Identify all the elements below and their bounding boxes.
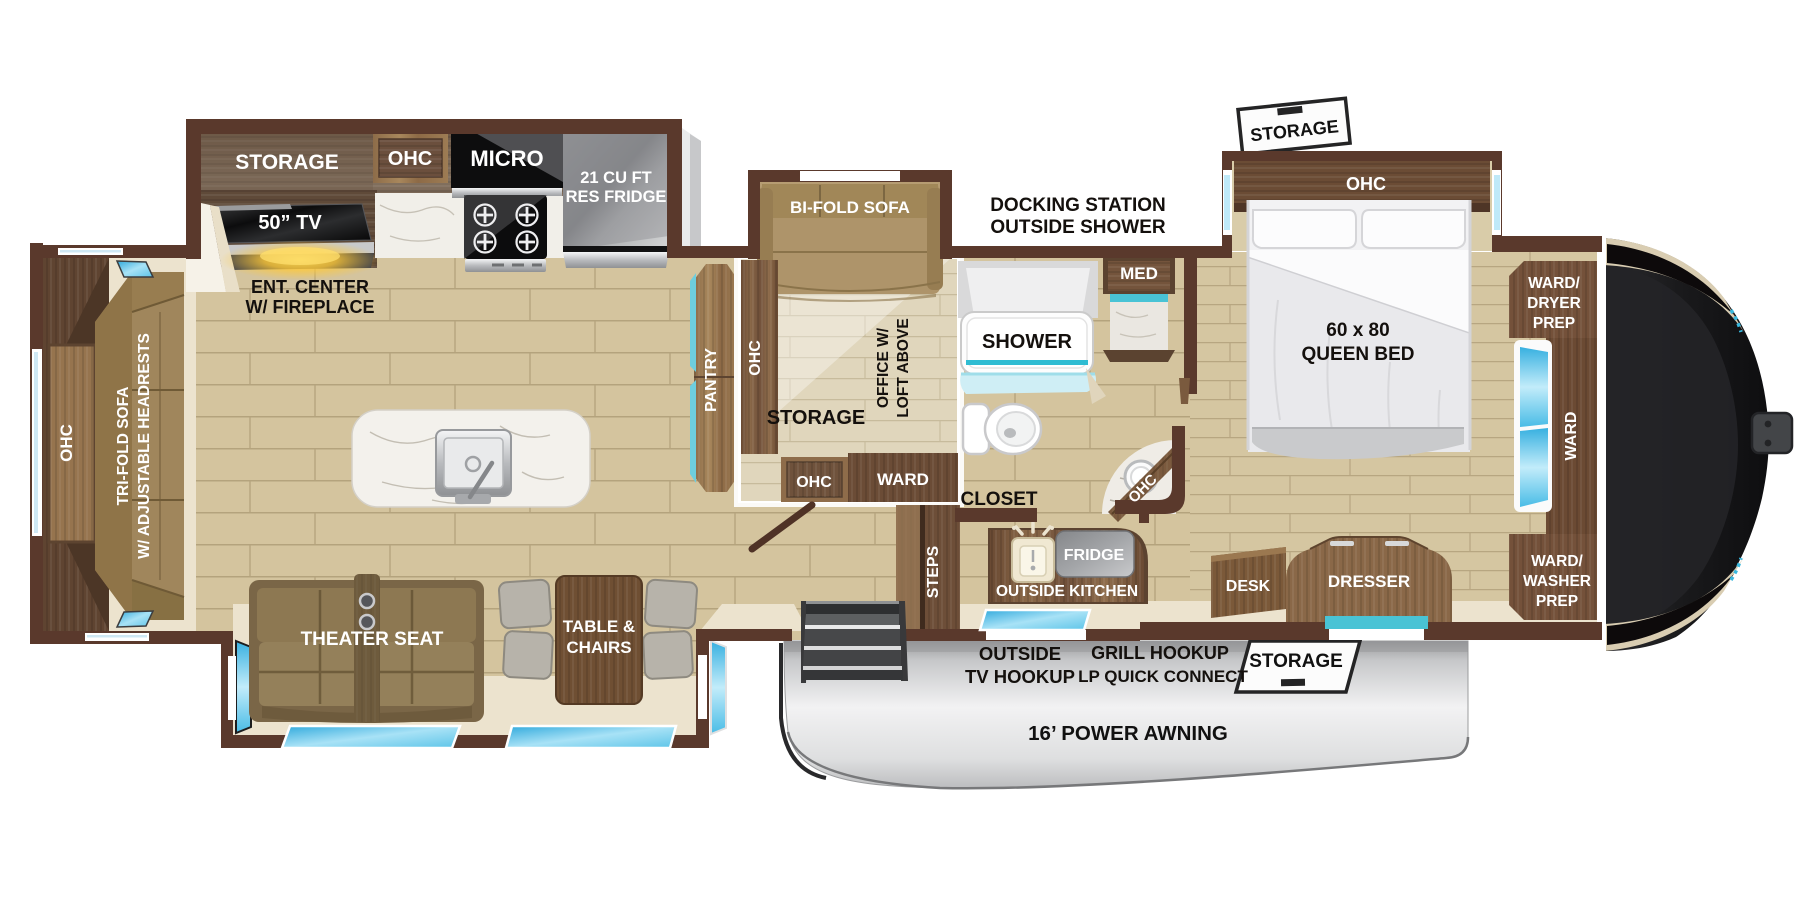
svg-text:OUTSIDE SHOWER: OUTSIDE SHOWER bbox=[990, 217, 1166, 238]
svg-text:DRESSER: DRESSER bbox=[1328, 572, 1410, 591]
svg-text:STORAGE: STORAGE bbox=[235, 151, 338, 174]
svg-text:50” TV: 50” TV bbox=[258, 212, 322, 234]
svg-text:DESK: DESK bbox=[1226, 578, 1271, 595]
svg-text:WARD: WARD bbox=[1563, 412, 1580, 461]
svg-text:STORAGE: STORAGE bbox=[767, 407, 866, 429]
svg-text:OHC: OHC bbox=[796, 474, 832, 491]
svg-text:PREP: PREP bbox=[1533, 315, 1575, 332]
svg-text:PANTRY: PANTRY bbox=[703, 348, 720, 412]
svg-text:OHC: OHC bbox=[388, 148, 432, 170]
svg-text:DOCKING STATION: DOCKING STATION bbox=[990, 195, 1166, 216]
svg-text:FRIDGE: FRIDGE bbox=[1064, 547, 1125, 564]
svg-text:21 CU FT: 21 CU FT bbox=[580, 169, 652, 187]
svg-text:CLOSET: CLOSET bbox=[960, 489, 1037, 510]
svg-text:STORAGE: STORAGE bbox=[1249, 651, 1343, 672]
svg-text:W/ ADJUSTABLE HEADRESTS: W/ ADJUSTABLE HEADRESTS bbox=[136, 333, 153, 559]
svg-text:OHC: OHC bbox=[57, 424, 76, 462]
svg-text:60 x 80: 60 x 80 bbox=[1326, 320, 1389, 341]
svg-text:16’ POWER AWNING: 16’ POWER AWNING bbox=[1028, 722, 1228, 745]
svg-text:OUTSIDE: OUTSIDE bbox=[979, 643, 1061, 664]
svg-text:OFFICE W/: OFFICE W/ bbox=[875, 327, 892, 408]
svg-text:CHAIRS: CHAIRS bbox=[566, 638, 631, 657]
svg-text:WARD: WARD bbox=[877, 470, 929, 489]
svg-text:WARD/: WARD/ bbox=[1531, 553, 1583, 570]
svg-text:LOFT ABOVE: LOFT ABOVE bbox=[895, 318, 912, 417]
svg-text:GRILL HOOKUP: GRILL HOOKUP bbox=[1091, 643, 1229, 663]
svg-text:TRI-FOLD SOFA: TRI-FOLD SOFA bbox=[115, 387, 132, 506]
svg-text:WARD/: WARD/ bbox=[1528, 275, 1580, 292]
svg-text:TV HOOKUP: TV HOOKUP bbox=[965, 666, 1075, 687]
svg-text:RES FRIDGE: RES FRIDGE bbox=[566, 188, 667, 206]
svg-text:W/ FIREPLACE: W/ FIREPLACE bbox=[246, 297, 375, 317]
svg-text:TABLE &: TABLE & bbox=[563, 617, 635, 636]
svg-text:QUEEN BED: QUEEN BED bbox=[1302, 344, 1415, 365]
svg-text:MED: MED bbox=[1120, 264, 1158, 283]
svg-text:PREP: PREP bbox=[1536, 593, 1578, 610]
svg-text:BI-FOLD SOFA: BI-FOLD SOFA bbox=[790, 198, 910, 217]
svg-text:MICRO: MICRO bbox=[470, 146, 543, 171]
svg-text:WASHER: WASHER bbox=[1523, 573, 1591, 590]
svg-text:DRYER: DRYER bbox=[1527, 295, 1581, 312]
svg-text:SHOWER: SHOWER bbox=[982, 331, 1073, 353]
svg-text:ENT. CENTER: ENT. CENTER bbox=[251, 277, 369, 297]
svg-text:STEPS: STEPS bbox=[925, 545, 942, 598]
svg-text:THEATER SEAT: THEATER SEAT bbox=[301, 629, 444, 650]
svg-text:OUTSIDE KITCHEN: OUTSIDE KITCHEN bbox=[996, 583, 1138, 600]
svg-text:OHC: OHC bbox=[747, 340, 764, 376]
svg-text:OHC: OHC bbox=[1346, 174, 1386, 194]
svg-text:LP QUICK CONNECT: LP QUICK CONNECT bbox=[1078, 667, 1248, 686]
